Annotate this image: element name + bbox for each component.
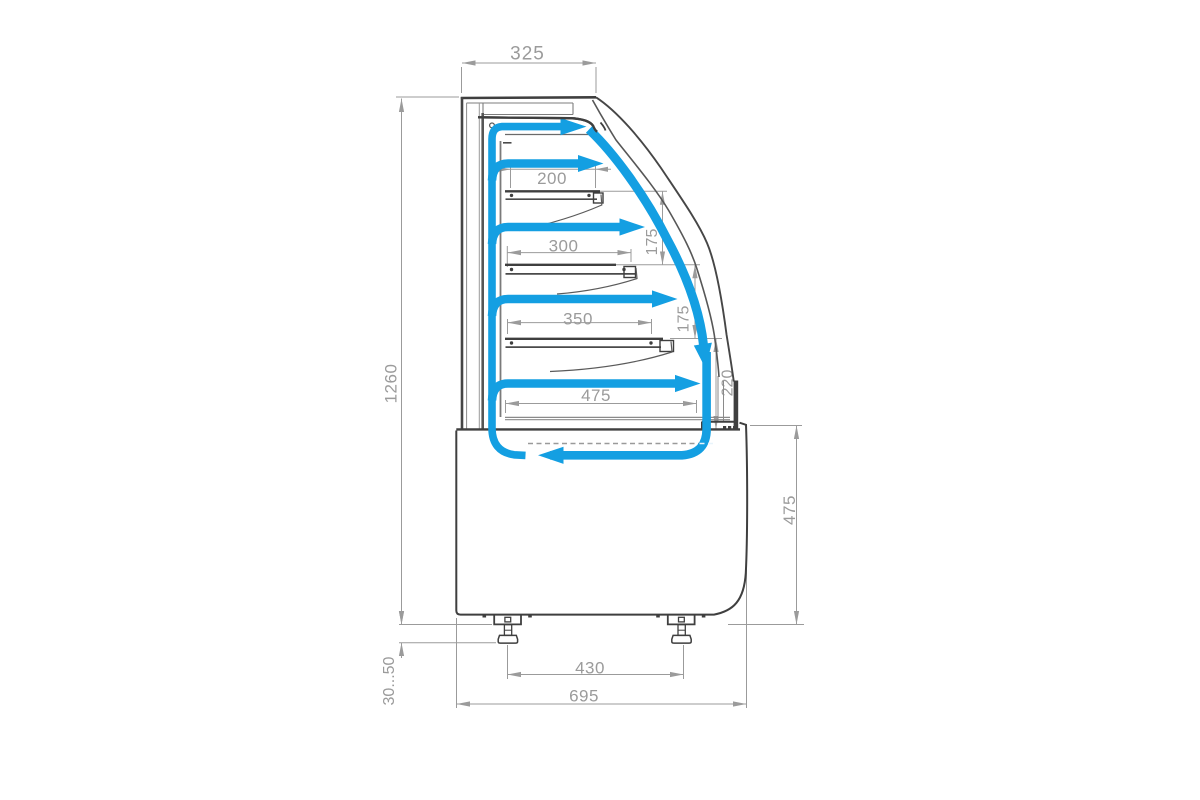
svg-text:175: 175 [676,306,693,333]
svg-text:30...50: 30...50 [381,656,398,705]
svg-text:1260: 1260 [382,364,401,404]
svg-text:200: 200 [537,169,567,188]
svg-text:475: 475 [780,495,799,525]
svg-text:300: 300 [549,237,579,256]
svg-text:175: 175 [644,229,661,256]
svg-text:695: 695 [569,687,599,706]
svg-text:430: 430 [575,659,605,678]
svg-text:350: 350 [563,309,593,328]
svg-text:325: 325 [510,44,545,65]
svg-text:475: 475 [581,386,611,405]
